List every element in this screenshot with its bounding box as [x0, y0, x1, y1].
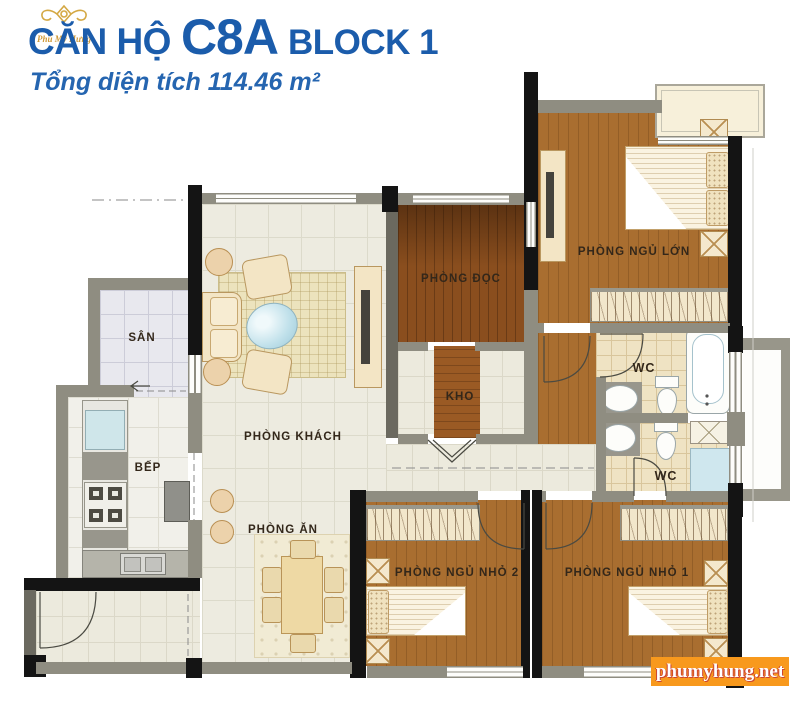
wall	[367, 666, 447, 678]
wall	[590, 323, 730, 333]
wall	[24, 590, 36, 662]
wall	[521, 490, 542, 678]
wall	[202, 662, 352, 674]
nightstand	[704, 560, 728, 586]
sofa-cushion	[210, 297, 238, 326]
wash-basin	[601, 424, 636, 452]
wall	[596, 413, 688, 423]
room-label-phong-ngu-lon: PHÒNG NGỦ LỚN	[578, 246, 690, 258]
wall	[188, 185, 202, 355]
armchair	[241, 348, 293, 395]
reading-window	[413, 194, 509, 204]
counter-gray	[83, 452, 127, 480]
dining-chair	[290, 634, 316, 653]
nightstand	[700, 231, 728, 257]
toilet-tank	[655, 376, 679, 388]
total-area-subtitle: Tổng diện tích 114.46 m²	[30, 68, 320, 97]
title-prefix: CĂN HỘ	[28, 21, 171, 63]
room-label-phong-khach: PHÒNG KHÁCH	[244, 431, 342, 443]
nightstand	[366, 558, 390, 584]
side-table	[203, 358, 231, 386]
burner-icon	[108, 487, 122, 500]
room-label-phong-doc: PHÒNG ĐỌC	[421, 273, 501, 285]
wall	[538, 100, 662, 113]
burner-icon	[89, 509, 103, 522]
wall	[538, 323, 544, 333]
floor-plan-page: { "header": { "logo_text": "Phú Mỹ Hưng"…	[0, 0, 800, 710]
wall	[382, 186, 398, 212]
wall	[88, 278, 188, 290]
bedroom2-window	[447, 666, 523, 678]
stove	[84, 482, 127, 528]
burner-icon	[108, 509, 122, 522]
room-label-wc-top: WC	[633, 361, 656, 375]
reading-side-window	[526, 202, 536, 247]
wall	[350, 490, 366, 678]
sink-basin	[145, 557, 162, 572]
wall	[475, 342, 526, 351]
pillow	[706, 190, 729, 226]
sink-basin	[124, 557, 141, 572]
wall	[366, 491, 478, 502]
wall	[188, 520, 202, 578]
wall	[386, 212, 398, 438]
wall	[24, 578, 200, 591]
room-label-phong-an: PHÒNG ĂN	[248, 524, 318, 536]
bathtub	[686, 328, 730, 414]
service-loggia	[743, 338, 790, 501]
dining-chair	[290, 540, 316, 559]
wall	[88, 278, 100, 397]
master-wardrobe	[590, 288, 730, 322]
washing-machine	[690, 421, 728, 444]
wash-basin	[602, 385, 638, 412]
bedroom1-window	[584, 666, 660, 678]
dining-chair	[324, 597, 344, 623]
balcony-window	[658, 136, 728, 145]
stool	[210, 489, 234, 513]
room-label-bep: BẾP	[135, 462, 162, 474]
watermark: phumyhung.net	[651, 657, 789, 686]
wall	[524, 72, 538, 290]
title-suffix: BLOCK 1	[288, 23, 438, 63]
pillow	[368, 590, 389, 634]
wall	[596, 377, 606, 491]
wall	[666, 491, 728, 502]
living-window	[216, 193, 356, 204]
page-title: CĂN HỘ C8A BLOCK 1	[28, 8, 438, 66]
wall	[36, 662, 188, 674]
bedroom-corridor	[386, 444, 596, 491]
armchair	[241, 253, 293, 300]
dining-chair	[324, 567, 344, 593]
tv-icon	[546, 172, 554, 238]
wall	[398, 434, 428, 444]
wall	[728, 490, 742, 678]
wall	[728, 136, 742, 326]
wall	[476, 434, 526, 444]
wardrobe-bedroom-2	[366, 505, 480, 541]
room-label-phong-ngu-nho-1: PHÒNG NGỦ NHỎ 1	[565, 567, 689, 579]
stool	[210, 520, 234, 544]
steel-sink	[120, 553, 166, 575]
title-code: C8A	[181, 8, 278, 66]
hallway-wood	[538, 333, 596, 444]
room-label-san: SÂN	[128, 332, 155, 344]
room-label-wc-bottom: WC	[655, 469, 678, 483]
wall	[542, 666, 584, 678]
sofa	[202, 292, 242, 362]
kitchen-sink	[85, 410, 125, 450]
pillow	[707, 590, 728, 634]
side-table	[205, 248, 233, 276]
wall	[524, 290, 538, 444]
dining-chair	[262, 567, 282, 593]
wall	[188, 393, 202, 453]
burner-icon	[89, 487, 103, 500]
nightstand	[366, 638, 390, 664]
wall	[592, 491, 634, 502]
tv-icon	[361, 290, 370, 364]
sofa-cushion	[210, 329, 238, 358]
pillow	[706, 152, 729, 188]
wall	[398, 342, 428, 351]
wall	[728, 326, 743, 353]
san-door-window	[188, 355, 202, 393]
dining-table	[281, 556, 323, 634]
wardrobe-bedroom-1	[620, 505, 728, 541]
counter-gray	[83, 530, 127, 548]
bathtub-inner	[692, 334, 724, 404]
wall	[56, 385, 68, 578]
entry-corridor	[36, 590, 200, 662]
fridge	[164, 481, 190, 522]
wall	[186, 658, 202, 678]
room-label-kho: KHO	[446, 391, 475, 403]
wall	[727, 412, 745, 446]
room-label-phong-ngu-nho-2: PHÒNG NGỦ NHỎ 2	[395, 567, 519, 579]
dining-chair	[262, 597, 282, 623]
